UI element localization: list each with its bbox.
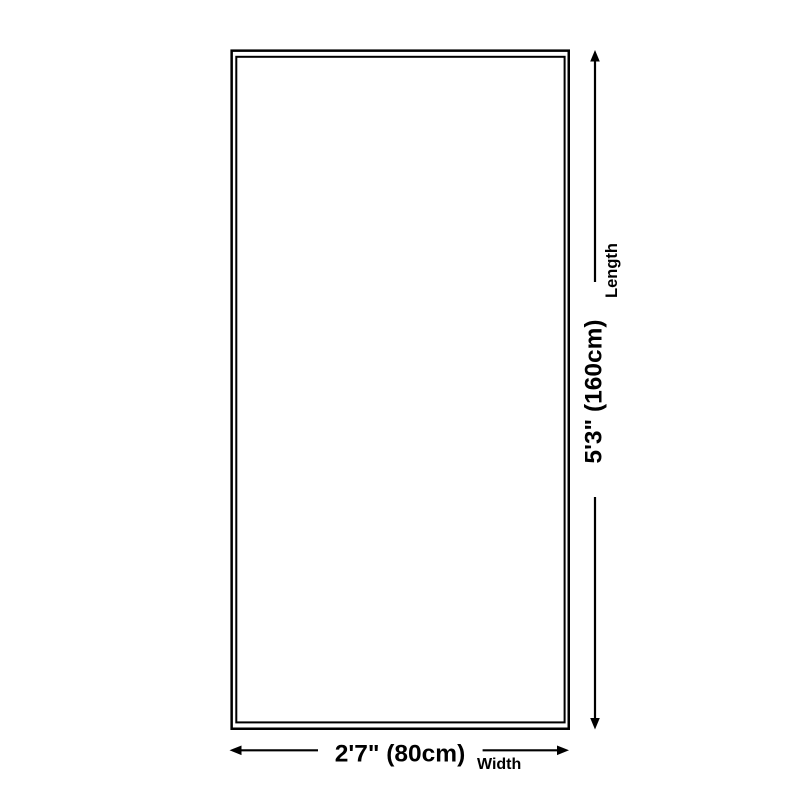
svg-text:2'7" (80cm): 2'7" (80cm) (335, 740, 465, 767)
svg-text:Width: Width (477, 756, 521, 773)
svg-text:Length: Length (603, 243, 621, 298)
svg-text:5'3" (160cm): 5'3" (160cm) (581, 319, 608, 463)
